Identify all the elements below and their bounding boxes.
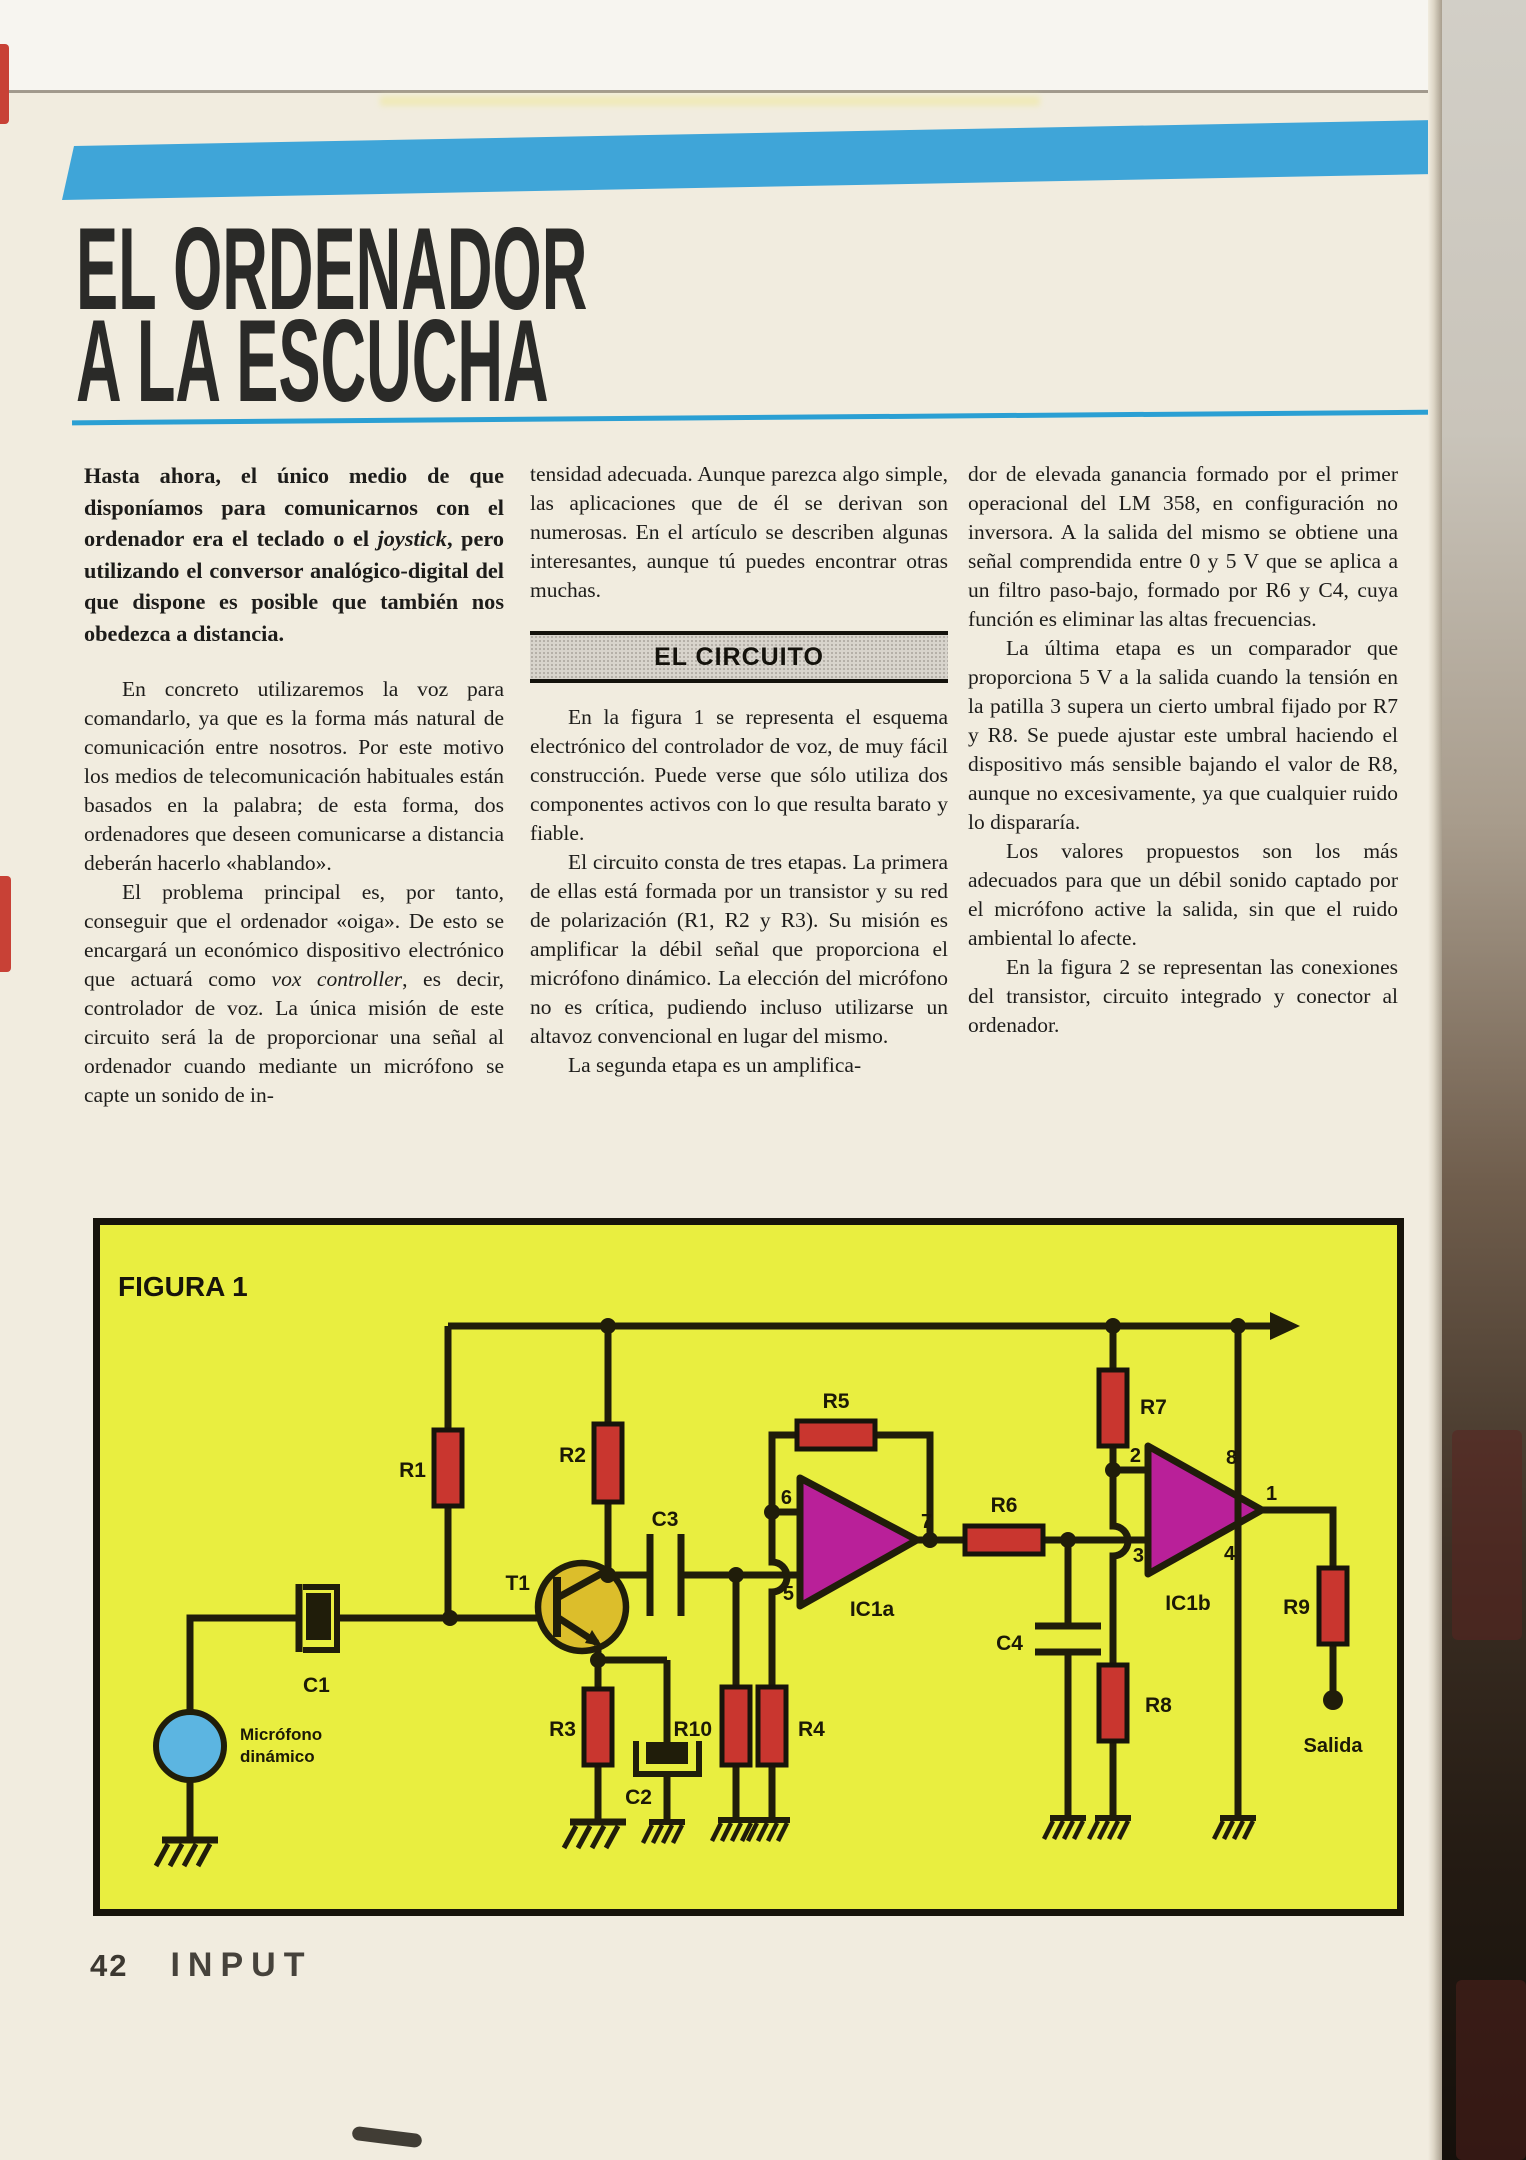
pin-7: 7: [921, 1511, 932, 1533]
c3-plates: [650, 1534, 681, 1616]
page-number: 42: [90, 1948, 128, 1984]
scan-page-curl: [1428, 0, 1442, 2160]
opamp-ic1b-symbol: [1148, 1446, 1262, 1574]
text-column-2: tensidad adecuada. Aunque parezca algo s…: [530, 460, 948, 1080]
t1-legs: [557, 1571, 606, 1643]
resistor-r3: [584, 1689, 612, 1765]
paragraph: En la figura 1 se representa el esquema …: [530, 703, 948, 848]
label-r8: R8: [1145, 1694, 1172, 1717]
label-r1: R1: [399, 1459, 426, 1482]
page-footer: 42 INPUT: [90, 1946, 312, 1985]
circuit-wires: [190, 1326, 1333, 1840]
section-header-band: EL CIRCUITO: [530, 631, 948, 683]
paragraph: El circuito consta de tres etapas. La pr…: [530, 848, 948, 1051]
scan-smear: [380, 96, 1040, 106]
intro-paragraph: Hasta ahora, el único medio de que dispo…: [84, 460, 504, 649]
resistors: [434, 1370, 1347, 1765]
pin-8: 8: [1226, 1447, 1237, 1469]
text-column-1: Hasta ahora, el único medio de que dispo…: [84, 460, 504, 1110]
scan-maroon-patch: [1452, 1430, 1522, 1640]
label-salida: Salida: [1304, 1735, 1364, 1757]
transistor-t1-symbol: [538, 1563, 626, 1651]
section-header: EL CIRCUITO: [654, 643, 824, 672]
label-ic1a: IC1a: [850, 1598, 895, 1621]
resistor-r4: [758, 1687, 786, 1765]
capacitor-c2-plate: [646, 1742, 688, 1764]
pin-6: 6: [781, 1487, 792, 1509]
paragraph: En la figura 2 se representan las conexi…: [968, 953, 1398, 1040]
paragraph: Los valores propuestos son los más adecu…: [968, 837, 1398, 953]
paragraph: El problema principal es, por tanto, con…: [84, 878, 504, 1110]
label-microphone-line1: Micrófono: [240, 1725, 322, 1744]
scan-page-edge-line: [0, 90, 1470, 93]
resistor-r10: [722, 1687, 750, 1765]
header-banner: [60, 118, 1435, 200]
label-r10: R10: [673, 1718, 712, 1741]
scan-red-sliver-top: [0, 44, 9, 124]
scan-top-strip: [0, 0, 1526, 91]
pin-3: 3: [1133, 1545, 1144, 1567]
label-c3: C3: [652, 1508, 679, 1531]
page-title-line2: A LA ESCUCHA: [76, 316, 549, 406]
figure-frame: [97, 1222, 1401, 1913]
scan-right-edge: [1442, 0, 1526, 2160]
c2-cup: [636, 1741, 699, 1774]
c1-cup: [303, 1587, 337, 1650]
label-r3: R3: [549, 1718, 576, 1741]
label-r4: R4: [798, 1718, 825, 1741]
pin-1: 1: [1266, 1483, 1277, 1505]
resistor-r7: [1099, 1370, 1127, 1446]
text-column-3: dor de elevada ganancia formado por el p…: [968, 460, 1398, 1040]
capacitor-c1-plate: [306, 1593, 331, 1640]
supply-arrow-icon: [1270, 1312, 1300, 1340]
scan-red-sliver-mid: [0, 876, 11, 972]
magazine-page: EL ORDENADOR A LA ESCUCHA Hasta ahora, e…: [0, 0, 1526, 2160]
label-t1: T1: [505, 1572, 530, 1595]
label-c1: C1: [303, 1674, 330, 1697]
paragraph: La segunda etapa es un amplifica-: [530, 1051, 948, 1080]
pin-5: 5: [783, 1583, 794, 1605]
pin-4: 4: [1224, 1543, 1236, 1565]
label-r2: R2: [559, 1444, 586, 1467]
label-microphone-line2: dinámico: [240, 1747, 315, 1766]
pin-numbers: 6 5 7 2 3 8 4 1: [781, 1445, 1277, 1605]
label-c2: C2: [625, 1786, 652, 1809]
resistor-r6: [965, 1526, 1043, 1554]
resistor-r1: [434, 1430, 462, 1506]
scan-maroon-patch2: [1456, 1980, 1526, 2160]
paragraph: La última etapa es un comparador que pro…: [968, 634, 1398, 837]
resistor-r2: [594, 1424, 622, 1502]
label-r9: R9: [1283, 1596, 1310, 1619]
label-ic1b: IC1b: [1165, 1592, 1211, 1615]
resistor-r5: [797, 1421, 875, 1449]
ground-symbols: [156, 1818, 1256, 1866]
salida-terminal: [1323, 1690, 1343, 1710]
paragraph: tensidad adecuada. Aunque parezca algo s…: [530, 460, 948, 605]
scan-smudge: [351, 2126, 422, 2148]
resistor-r9: [1319, 1568, 1347, 1644]
label-r7: R7: [1140, 1396, 1167, 1419]
label-c4: C4: [996, 1632, 1023, 1655]
component-labels: R1 R2 R3 R4 R5 R6 R7 R8 R9 R10 C1 C2 C3 …: [240, 1390, 1363, 1809]
paragraph: En concreto utilizaremos la voz para com…: [84, 675, 504, 878]
c4-plates: [1035, 1626, 1101, 1652]
microphone-symbol: [156, 1712, 224, 1780]
label-r5: R5: [823, 1390, 850, 1413]
t1-emitter-arrow-icon: [585, 1630, 602, 1646]
pin-2: 2: [1130, 1445, 1141, 1467]
magazine-name: INPUT: [170, 1946, 312, 1985]
label-r6: R6: [991, 1494, 1018, 1517]
figure-caption: FIGURA 1: [118, 1271, 248, 1302]
opamp-ic1a-symbol: [800, 1478, 917, 1606]
junction-dots: [442, 1318, 1343, 1710]
resistor-r8: [1099, 1665, 1127, 1741]
paragraph: dor de elevada ganancia formado por el p…: [968, 460, 1398, 634]
